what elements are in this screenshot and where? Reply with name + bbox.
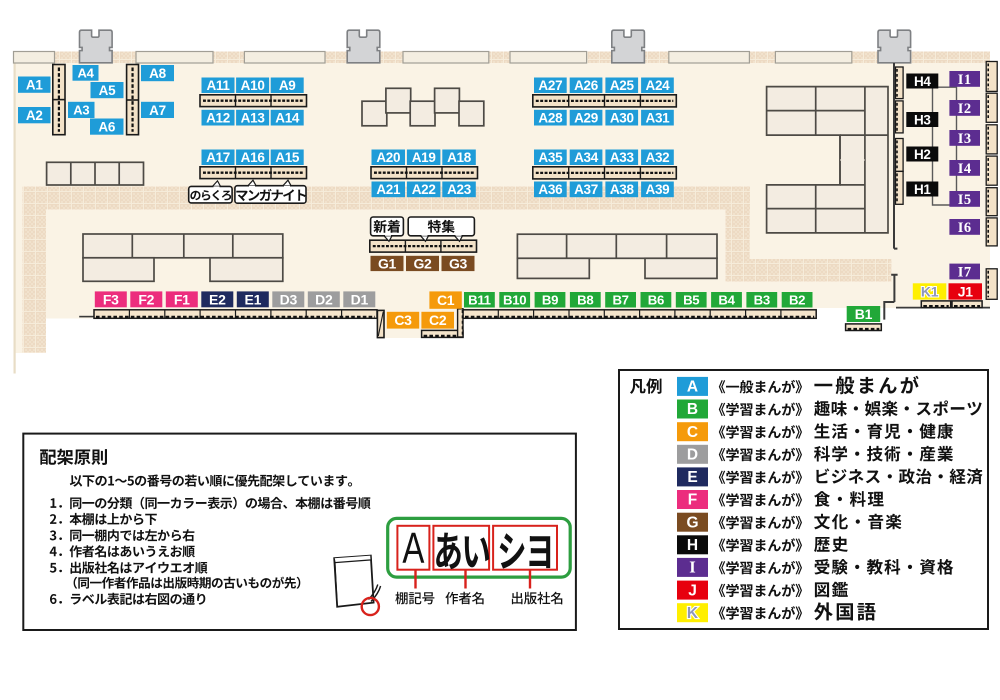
svg-text:A1: A1 xyxy=(26,78,43,93)
svg-text:B1: B1 xyxy=(855,306,873,322)
svg-text:A26: A26 xyxy=(574,78,599,93)
svg-text:B3: B3 xyxy=(754,293,770,308)
svg-text:D2: D2 xyxy=(315,291,333,307)
svg-text:C3: C3 xyxy=(394,312,412,328)
svg-text:E: E xyxy=(687,469,697,486)
svg-text:H1: H1 xyxy=(914,182,931,197)
svg-text:B2: B2 xyxy=(789,293,805,308)
svg-text:B: B xyxy=(687,401,698,418)
svg-text:A35: A35 xyxy=(538,150,563,165)
svg-text:A2: A2 xyxy=(26,108,43,123)
svg-text:A12: A12 xyxy=(206,111,230,126)
svg-text:A25: A25 xyxy=(610,78,635,93)
svg-text:A27: A27 xyxy=(538,78,562,93)
svg-text:H2: H2 xyxy=(914,147,931,162)
svg-text:A39: A39 xyxy=(646,182,670,197)
svg-text:E1: E1 xyxy=(245,291,262,307)
svg-text:A32: A32 xyxy=(646,150,670,165)
svg-text:F3: F3 xyxy=(103,291,119,307)
svg-text:I1: I1 xyxy=(958,72,972,88)
svg-text:A10: A10 xyxy=(241,78,265,93)
svg-text:A7: A7 xyxy=(149,103,166,118)
svg-text:A20: A20 xyxy=(376,150,400,165)
svg-text:A23: A23 xyxy=(447,182,472,197)
svg-text:D: D xyxy=(687,447,698,464)
svg-text:D1: D1 xyxy=(351,291,369,307)
svg-text:J1: J1 xyxy=(958,283,973,299)
svg-text:H3: H3 xyxy=(914,112,931,127)
svg-text:A22: A22 xyxy=(412,182,436,197)
svg-text:J: J xyxy=(688,582,697,599)
svg-text:I: I xyxy=(689,558,695,577)
svg-text:A13: A13 xyxy=(241,111,266,126)
svg-text:A19: A19 xyxy=(412,150,436,165)
svg-text:G: G xyxy=(686,514,698,531)
svg-text:I4: I4 xyxy=(958,161,972,177)
svg-text:A24: A24 xyxy=(646,78,671,93)
svg-text:A6: A6 xyxy=(98,119,115,134)
svg-text:K: K xyxy=(687,605,699,622)
svg-text:C: C xyxy=(687,424,698,441)
svg-text:I3: I3 xyxy=(958,131,972,147)
svg-text:A8: A8 xyxy=(149,66,166,81)
svg-text:C2: C2 xyxy=(429,312,447,328)
svg-text:I5: I5 xyxy=(958,192,972,208)
svg-text:A3: A3 xyxy=(73,103,89,118)
svg-text:F: F xyxy=(688,492,697,509)
svg-text:A37: A37 xyxy=(574,182,598,197)
svg-text:A15: A15 xyxy=(275,150,300,165)
svg-text:E2: E2 xyxy=(209,291,226,307)
svg-text:B5: B5 xyxy=(683,293,699,308)
svg-text:I2: I2 xyxy=(958,101,972,117)
svg-text:A33: A33 xyxy=(610,150,635,165)
svg-text:A4: A4 xyxy=(77,66,94,81)
svg-text:A17: A17 xyxy=(206,150,230,165)
svg-text:A18: A18 xyxy=(447,150,472,165)
svg-text:B10: B10 xyxy=(503,293,526,308)
svg-text:A29: A29 xyxy=(574,111,598,126)
svg-text:A11: A11 xyxy=(206,78,230,93)
svg-text:B4: B4 xyxy=(718,293,735,308)
svg-text:A: A xyxy=(687,379,698,396)
svg-text:G2: G2 xyxy=(413,255,432,271)
svg-text:B11: B11 xyxy=(468,293,491,308)
svg-text:A9: A9 xyxy=(279,78,296,93)
svg-text:G1: G1 xyxy=(378,255,397,271)
svg-text:B8: B8 xyxy=(577,293,593,308)
svg-text:D3: D3 xyxy=(280,291,298,307)
svg-text:A16: A16 xyxy=(241,150,266,165)
svg-text:A21: A21 xyxy=(376,182,401,197)
svg-text:B7: B7 xyxy=(612,293,628,308)
svg-text:A14: A14 xyxy=(275,111,300,126)
svg-text:A5: A5 xyxy=(99,83,116,98)
svg-text:A36: A36 xyxy=(538,182,563,197)
svg-text:K1: K1 xyxy=(921,283,939,299)
svg-text:F1: F1 xyxy=(174,291,190,307)
svg-text:H4: H4 xyxy=(914,74,931,89)
svg-text:A28: A28 xyxy=(538,111,563,126)
svg-text:A34: A34 xyxy=(574,150,599,165)
svg-text:I7: I7 xyxy=(958,264,972,280)
svg-text:H: H xyxy=(687,537,698,554)
svg-text:A: A xyxy=(402,525,424,574)
svg-text:G3: G3 xyxy=(449,255,468,271)
svg-text:A30: A30 xyxy=(610,111,634,126)
svg-text:B9: B9 xyxy=(542,293,558,308)
svg-text:A38: A38 xyxy=(610,182,635,197)
svg-text:B6: B6 xyxy=(648,293,664,308)
svg-text:I6: I6 xyxy=(958,220,972,236)
svg-text:A31: A31 xyxy=(646,111,671,126)
svg-text:C1: C1 xyxy=(437,292,455,308)
svg-text:F2: F2 xyxy=(138,291,154,307)
